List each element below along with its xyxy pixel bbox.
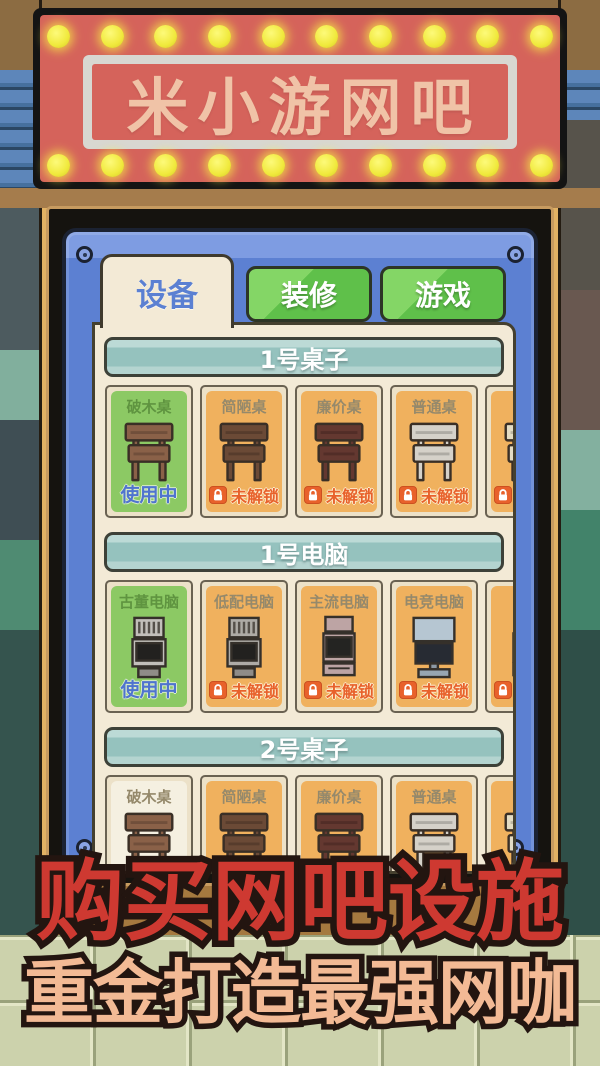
lock-icon bbox=[494, 681, 512, 699]
bulb-icon bbox=[154, 154, 177, 177]
bulb-icon bbox=[476, 154, 499, 177]
status-locked: 未解锁 bbox=[326, 678, 374, 702]
computer-icon bbox=[500, 615, 516, 679]
table-icon bbox=[405, 420, 463, 484]
table-icon bbox=[215, 420, 273, 484]
sign-frame: 米小游网吧 bbox=[83, 55, 517, 149]
lock-icon bbox=[304, 681, 322, 699]
item-name: 低配电脑 bbox=[214, 591, 274, 612]
item-name: 廉价桌 bbox=[316, 396, 361, 417]
section-header: 1号桌子 bbox=[104, 337, 504, 377]
cafe-title: 米小游网吧 bbox=[126, 57, 481, 147]
item-card[interactable]: 古董电脑 使用中 bbox=[105, 580, 193, 713]
item-name: 廉价桌 bbox=[316, 786, 361, 807]
game-screen: 米小游网吧 设备装修游戏 1号桌子 破木桌 使用中 简陋桌 bbox=[0, 0, 600, 1066]
cards-row: 破木桌 使用中 简陋桌 未解锁 廉价桌 bbox=[95, 385, 516, 518]
bulb-icon bbox=[423, 154, 446, 177]
bulb-icon bbox=[101, 25, 124, 48]
item-name: 主流电脑 bbox=[309, 591, 369, 612]
equipment-list: 1号桌子 破木桌 使用中 简陋桌 未解锁 bbox=[92, 322, 516, 874]
item-name: 古董电脑 bbox=[119, 591, 179, 612]
item-card[interactable]: 曲 未解锁 bbox=[485, 580, 516, 713]
cards-row: 古董电脑 使用中 低配电脑 未解锁 主流电脑 bbox=[95, 580, 516, 713]
bulb-icon bbox=[423, 25, 446, 48]
lock-icon bbox=[399, 681, 417, 699]
lock-icon bbox=[209, 486, 227, 504]
screw-icon bbox=[76, 246, 93, 263]
promo-line-2: 重金打造最强网咖 重金打造最强网咖 bbox=[0, 958, 600, 1028]
bulb-icon bbox=[315, 25, 338, 48]
item-card[interactable]: 主流电脑 未解锁 bbox=[295, 580, 383, 713]
computer-icon bbox=[405, 615, 463, 679]
tab-decoration[interactable]: 装修 bbox=[246, 266, 372, 322]
shop-panel: 设备装修游戏 1号桌子 破木桌 使用中 简陋桌 bbox=[62, 228, 538, 874]
status-locked: 未解锁 bbox=[421, 678, 469, 702]
lock-icon bbox=[209, 681, 227, 699]
item-name: 简陋桌 bbox=[221, 396, 266, 417]
bulb-icon bbox=[154, 25, 177, 48]
bulb-icon bbox=[47, 25, 70, 48]
status-in-use: 使用中 bbox=[120, 480, 177, 507]
item-card[interactable]: 破木桌 使用中 bbox=[105, 385, 193, 518]
computer-icon bbox=[120, 615, 178, 679]
lock-icon bbox=[399, 486, 417, 504]
item-card[interactable]: 廉价桌 未解锁 bbox=[295, 385, 383, 518]
bulb-icon bbox=[369, 25, 392, 48]
bulb-icon bbox=[208, 154, 231, 177]
bulb-row bbox=[47, 24, 553, 48]
bulb-icon bbox=[208, 25, 231, 48]
computer-icon bbox=[310, 615, 368, 679]
bulb-icon bbox=[315, 154, 338, 177]
tab-equipment[interactable]: 设备 bbox=[100, 254, 234, 328]
status-locked: 未解锁 bbox=[421, 483, 469, 507]
item-name: 电竞电脑 bbox=[404, 591, 464, 612]
status-in-use: 使用中 bbox=[120, 675, 177, 702]
tab-games[interactable]: 游戏 bbox=[380, 266, 506, 322]
screw-icon bbox=[507, 246, 524, 263]
promo-line-1: 购买网吧设施 购买网吧设施 bbox=[0, 858, 600, 946]
bulb-icon bbox=[47, 154, 70, 177]
lock-icon bbox=[304, 486, 322, 504]
item-card[interactable]: 低配电脑 未解锁 bbox=[200, 580, 288, 713]
status-locked: 未解锁 bbox=[231, 483, 279, 507]
item-name: 破木桌 bbox=[126, 396, 171, 417]
table-icon bbox=[310, 420, 368, 484]
section-header: 2号桌子 bbox=[104, 727, 504, 767]
item-name: 简陋桌 bbox=[221, 786, 266, 807]
item-card[interactable]: 电竞电脑 未解锁 bbox=[390, 580, 478, 713]
table-icon bbox=[120, 420, 178, 484]
computer-icon bbox=[215, 615, 273, 679]
status-locked: 未解锁 bbox=[326, 483, 374, 507]
table-icon bbox=[500, 420, 516, 484]
bulb-icon bbox=[262, 25, 285, 48]
bulb-icon bbox=[530, 25, 553, 48]
lock-icon bbox=[494, 486, 512, 504]
section-header: 1号电脑 bbox=[104, 532, 504, 572]
bulb-icon bbox=[101, 154, 124, 177]
bulb-icon bbox=[530, 154, 553, 177]
item-name: 普通桌 bbox=[411, 396, 456, 417]
cafe-marquee-sign: 米小游网吧 bbox=[33, 8, 567, 189]
item-card[interactable]: 奢 未解锁 bbox=[485, 385, 516, 518]
bulb-icon bbox=[476, 25, 499, 48]
bulb-icon bbox=[369, 154, 392, 177]
item-name: 普通桌 bbox=[411, 786, 456, 807]
bulb-row bbox=[47, 153, 553, 177]
item-card[interactable]: 简陋桌 未解锁 bbox=[200, 385, 288, 518]
item-card[interactable]: 普通桌 未解锁 bbox=[390, 385, 478, 518]
wall-shelf-band bbox=[0, 188, 600, 208]
item-name: 破木桌 bbox=[126, 786, 171, 807]
bulb-icon bbox=[262, 154, 285, 177]
status-locked: 未解锁 bbox=[231, 678, 279, 702]
